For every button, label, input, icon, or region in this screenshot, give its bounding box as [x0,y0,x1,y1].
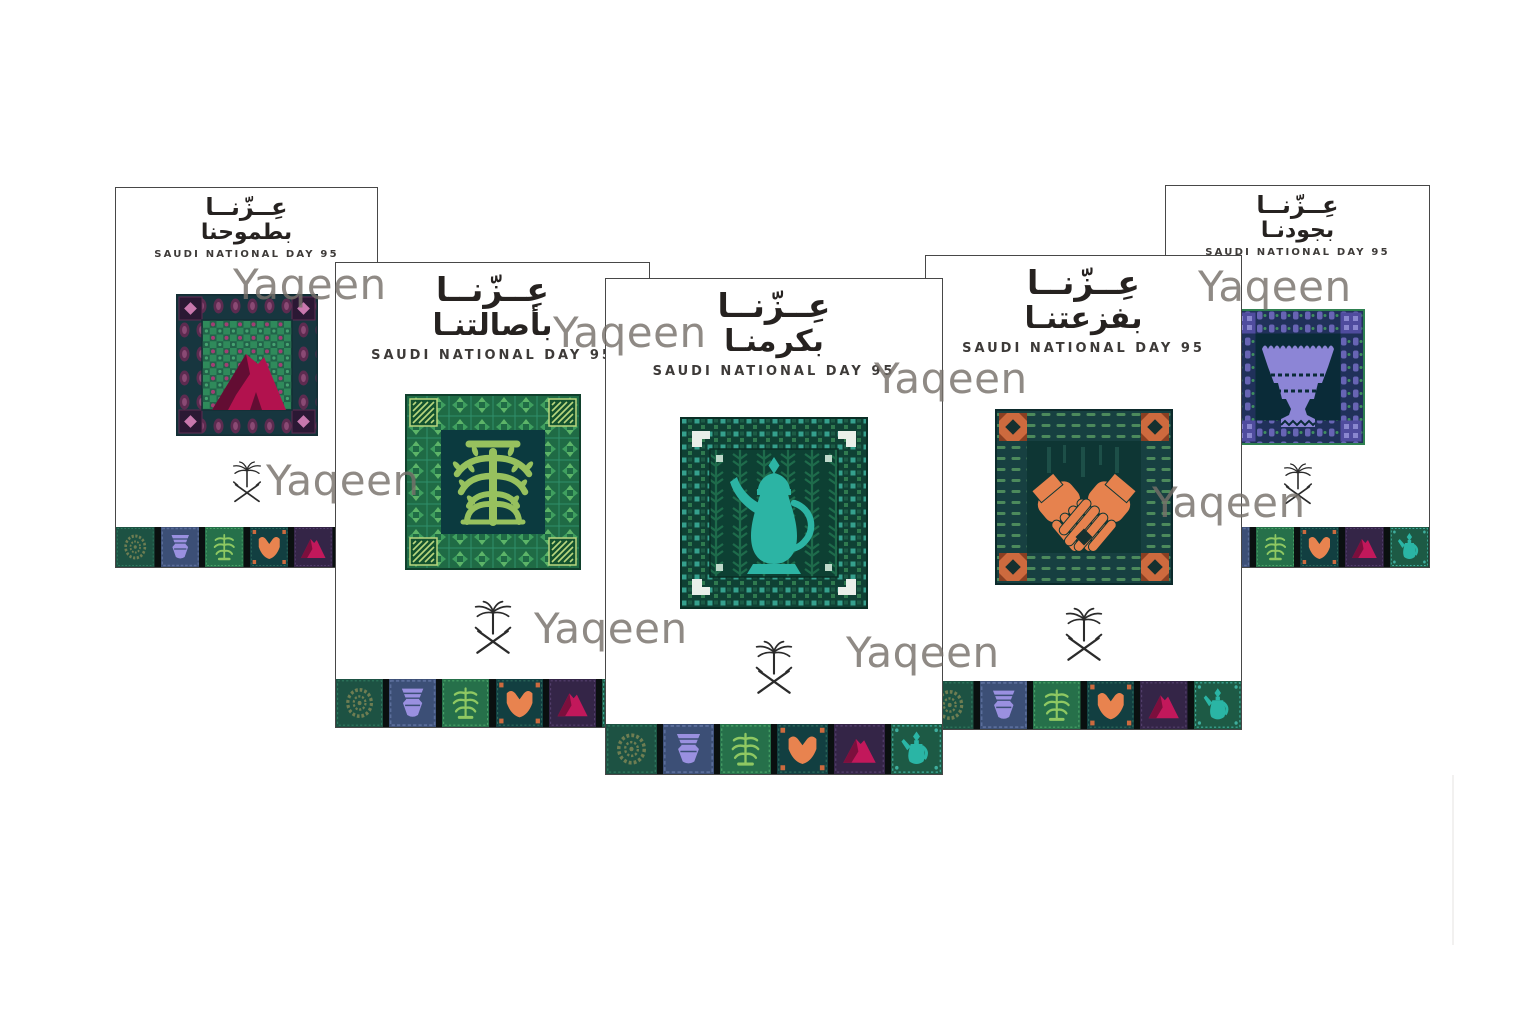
watermark-text: Yaqeen [553,312,707,354]
strip-square-tree [1256,527,1295,567]
strip-square-mountain [294,527,333,567]
strip-square-dallah [891,724,942,774]
palm-swords-emblem-icon [1058,606,1110,663]
strip-square-tree [205,527,244,567]
strip-square-rosette [336,679,383,727]
motif-strip [336,679,649,727]
strip-square-mountain [1140,681,1188,729]
watermark-text: Yaqeen [874,358,1028,400]
watermark-text: Yaqeen [233,264,387,306]
strip-square-incense-burner [161,527,200,567]
strip-square-mountain [549,679,596,727]
motif-strip [926,681,1241,729]
strip-square-hands [1300,527,1339,567]
palm-swords-emblem-icon [748,639,800,696]
dallah-motif-graphic [680,417,868,609]
incense-burner-motif-graphic [1231,309,1365,445]
card-title-block: عِــزّنــا بفزعتنـا SAUDI NATIONAL DAY 9… [926,256,1241,356]
card-title-block: عِــزّنــا بجودنـا SAUDI NATIONAL DAY 95 [1166,186,1429,258]
strip-square-hands [777,724,828,774]
strip-square-mountain [834,724,885,774]
arabic-title-line2: بجودنـا [1166,219,1429,242]
strip-square-rosette [606,724,657,774]
arabic-title-line2: بفزعتنـا [926,303,1241,335]
strip-square-tree [1033,681,1081,729]
strip-square-dallah [1194,681,1242,729]
motif-strip [606,724,942,774]
strip-square-hands [496,679,543,727]
arabic-title-line1: عِــزّنــا [1166,193,1429,218]
dallah-motif-panel [680,417,868,609]
strip-square-dallah [1390,527,1429,567]
watermark-text: Yaqeen [266,460,420,502]
faint-artifact-line [1452,775,1454,945]
palm-swords-emblem-icon [467,599,519,656]
watermark-text: Yaqeen [534,608,688,650]
tree-motif-panel [405,394,581,570]
watermark-text: Yaqeen [1198,266,1352,308]
card-title-block: عِــزّنــا بطموحنا SAUDI NATIONAL DAY 95 [116,188,377,260]
card-subtitle: SAUDI NATIONAL DAY 95 [116,249,377,260]
tree-motif-graphic [405,394,581,570]
mountain-motif-graphic [176,294,318,436]
strip-square-mountain [1345,527,1384,567]
watermark-text: Yaqeen [1152,482,1306,524]
arabic-title-line1: عِــزّنــا [116,195,377,220]
mountain-motif-panel [176,294,318,436]
strip-square-rosette [116,527,155,567]
strip-square-tree [720,724,771,774]
palm-swords-emblem-icon [227,460,267,504]
watermark-text: Yaqeen [846,632,1000,674]
strip-square-incense-burner [663,724,714,774]
incense-burner-motif-panel [1231,309,1365,445]
hands-motif-graphic [995,409,1173,585]
strip-square-hands [1087,681,1135,729]
arabic-title-line2: بطموحنا [116,221,377,244]
hands-motif-panel [995,409,1173,585]
strip-square-tree [442,679,489,727]
strip-square-incense-burner [389,679,436,727]
strip-square-incense-burner [980,681,1028,729]
strip-square-hands [250,527,289,567]
arabic-title-line1: عِــزّنــا [926,266,1241,301]
poster-collage: عِــزّنــا بطموحنا SAUDI NATIONAL DAY 95 [0,0,1531,1011]
